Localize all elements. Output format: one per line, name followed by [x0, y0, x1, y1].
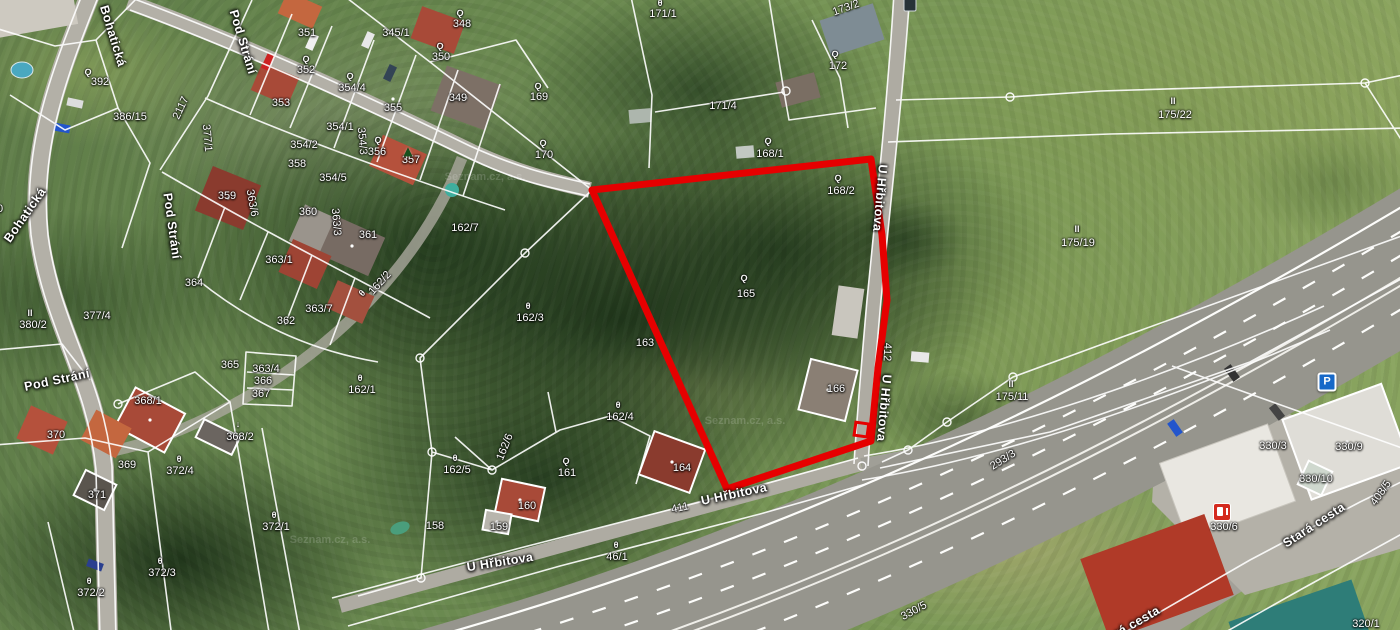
map-canvas[interactable]: BohatickáBohatickáPod StráníPod StráníPo…: [0, 0, 1400, 630]
cadastral-overlay: [0, 0, 1400, 630]
